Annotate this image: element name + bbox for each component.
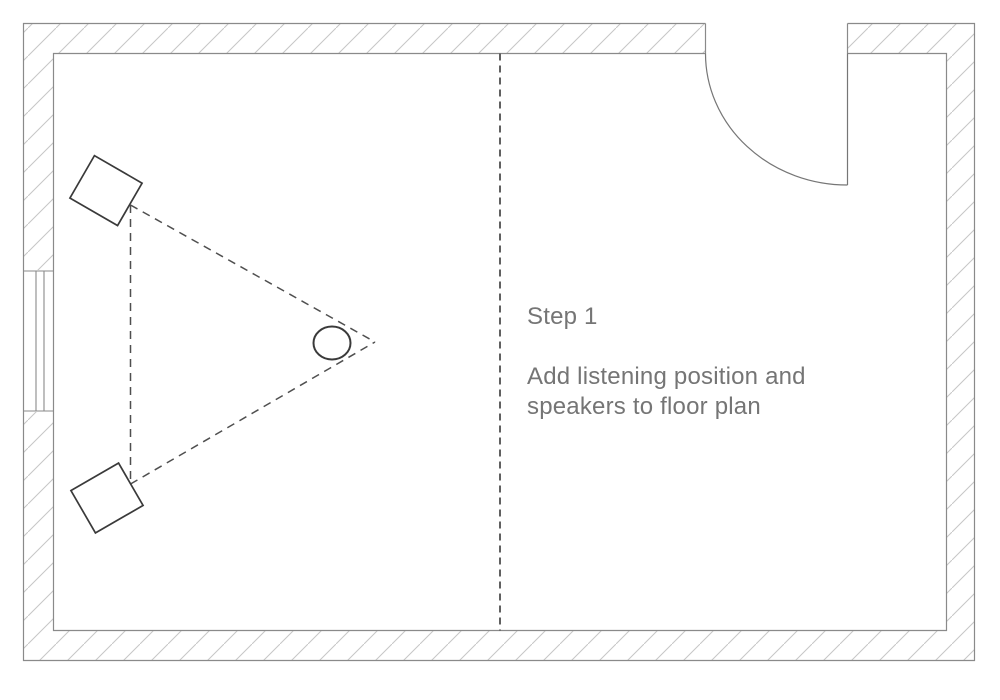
instruction-line-2: speakers to floor plan: [527, 392, 806, 422]
annotation-spacer: [527, 332, 806, 362]
left-bottom-speaker: [71, 463, 143, 533]
window-opening: [23, 270, 55, 412]
wall-outlines: [24, 24, 975, 661]
door-swing-arc: [706, 54, 848, 186]
left-top-speaker: [70, 156, 142, 226]
outer-wall-outline: [24, 24, 975, 661]
room-objects: [70, 156, 351, 533]
floor-plan-page: Step 1 Add listening position and speake…: [0, 0, 1000, 700]
listening-position-circle: [314, 327, 351, 360]
stereo-triangle-bottom-side: [131, 342, 376, 484]
door-symbol: [706, 54, 848, 186]
wall-hatch-band: [24, 24, 975, 661]
door-opening: [706, 22, 848, 55]
floor-plan-drawing: [0, 0, 1000, 700]
instruction-line-1: Add listening position and: [527, 362, 806, 392]
step-annotation: Step 1 Add listening position and speake…: [527, 302, 806, 422]
stereo-triangle-top-side: [131, 205, 376, 342]
step-label: Step 1: [527, 302, 806, 332]
